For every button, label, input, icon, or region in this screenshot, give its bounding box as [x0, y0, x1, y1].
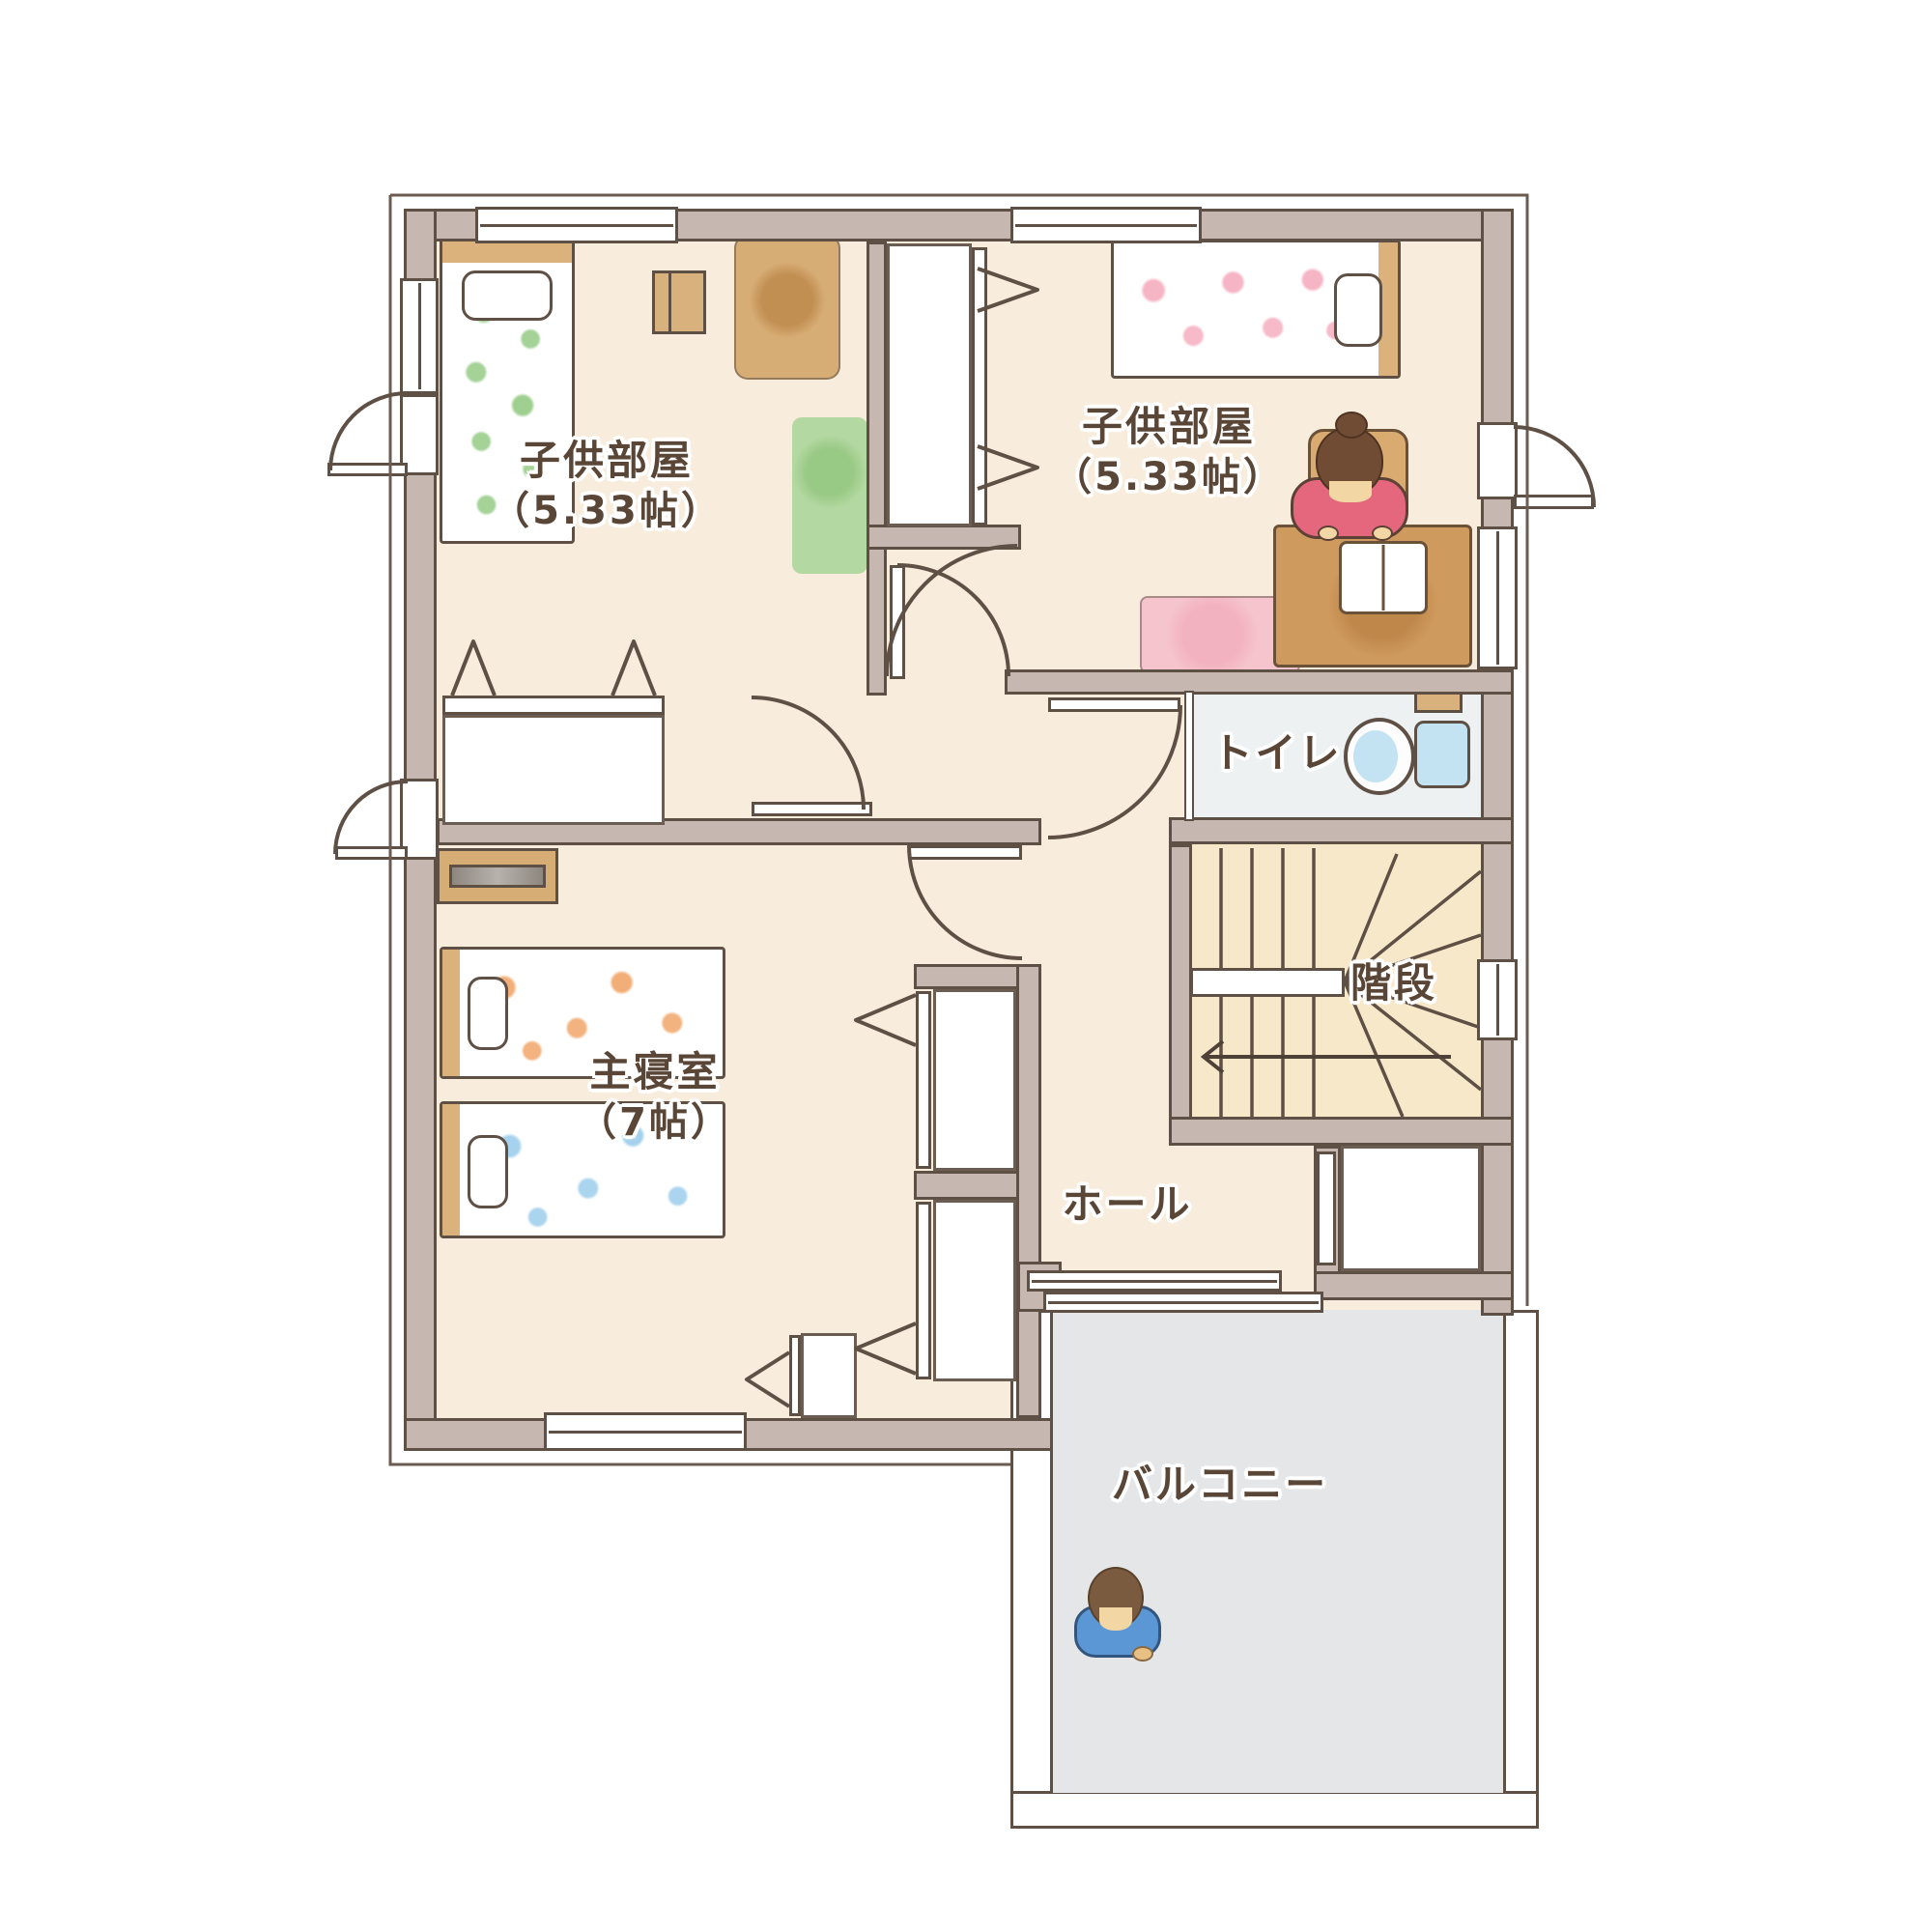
label-kids-room-2-size: （5.33帖） — [1053, 452, 1285, 500]
label-master-bedroom: 主寝室 （7帖） — [578, 1047, 732, 1147]
label-toilet: トイレ — [1211, 728, 1342, 780]
label-kids-room-2: 子供部屋 （5.33帖） — [1053, 402, 1285, 501]
boy-face — [1099, 1607, 1132, 1631]
boy-hand — [1132, 1646, 1153, 1662]
label-master-bedroom-name: 主寝室 — [578, 1047, 732, 1098]
label-kids-room-1-size: （5.33帖） — [491, 486, 723, 534]
label-kids-room-2-name: 子供部屋 — [1053, 402, 1285, 453]
floor-plan: 子供部屋 （5.33帖） 子供部屋 （5.33帖） 主寝室 （7帖） トイレ 階… — [0, 0, 1932, 1932]
label-kids-room-1-name: 子供部屋 — [491, 436, 723, 487]
label-master-bedroom-size: （7帖） — [578, 1097, 732, 1146]
label-stairs: 階段 — [1350, 958, 1437, 1009]
label-kids-room-1: 子供部屋 （5.33帖） — [491, 436, 723, 535]
label-balcony: バルコニー — [1112, 1460, 1328, 1511]
line-art — [0, 0, 1932, 1932]
label-hall: ホール — [1062, 1179, 1192, 1231]
